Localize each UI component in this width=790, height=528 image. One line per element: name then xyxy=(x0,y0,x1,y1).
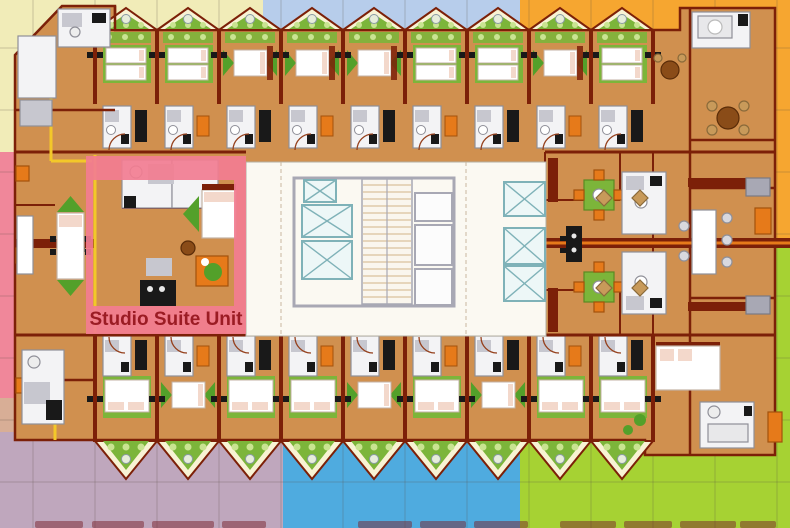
burner xyxy=(147,286,153,292)
cabinet-bar xyxy=(548,158,558,202)
pillow xyxy=(449,50,454,61)
planter xyxy=(556,15,565,24)
hinge-dot xyxy=(560,236,567,241)
pillow xyxy=(449,67,454,78)
hinge-dot xyxy=(149,52,155,58)
kitchen-counter xyxy=(383,340,395,370)
headboard xyxy=(202,184,236,190)
cabinet-grid xyxy=(768,412,782,442)
hinge-dot xyxy=(345,396,351,402)
planter xyxy=(122,15,131,24)
chair xyxy=(574,190,584,200)
chair-tan xyxy=(739,125,749,135)
plant-dot xyxy=(262,34,268,40)
hinge-dot xyxy=(397,396,403,402)
fixture xyxy=(245,134,253,144)
chair-tan xyxy=(707,101,717,111)
hinge-dot xyxy=(469,52,475,58)
kitchen-counter xyxy=(631,340,643,370)
hinge-dot xyxy=(50,249,56,255)
pillow xyxy=(678,349,692,361)
hinge-dot xyxy=(459,52,465,58)
pillow xyxy=(108,402,124,410)
hinge-dot xyxy=(335,52,341,58)
kitchen-counter xyxy=(259,110,271,142)
chair xyxy=(574,282,584,292)
chair-round xyxy=(722,257,732,267)
bathtub xyxy=(708,424,748,442)
chair-round xyxy=(679,251,689,261)
plant-dot xyxy=(324,34,330,40)
kitchen-counter xyxy=(140,280,176,306)
plant-dot xyxy=(572,444,579,451)
sink xyxy=(169,126,178,135)
fixture xyxy=(738,14,748,26)
room-left xyxy=(18,36,56,98)
pillow xyxy=(604,402,620,410)
hinge-dot xyxy=(655,396,661,402)
plant-dot xyxy=(510,34,516,40)
hinge-dot xyxy=(521,396,527,402)
kitchen-counter xyxy=(259,340,271,370)
highlight-band xyxy=(234,180,246,306)
sink xyxy=(28,356,40,368)
plant-dot xyxy=(619,444,626,451)
plant-dot xyxy=(448,34,454,40)
chair-tan xyxy=(654,54,662,62)
divider-wall xyxy=(527,30,531,104)
divider-wall xyxy=(341,30,345,104)
pillow xyxy=(198,384,203,406)
kitchen-counter xyxy=(507,340,519,370)
pillow xyxy=(260,52,265,74)
cutoff-text xyxy=(560,521,616,528)
divider-wall xyxy=(403,30,407,104)
fixture xyxy=(555,362,563,372)
tile xyxy=(229,110,243,122)
planter xyxy=(370,455,379,464)
hinge-dot xyxy=(221,396,227,402)
side-table xyxy=(181,241,195,255)
kitchen-counter xyxy=(507,110,519,142)
planter xyxy=(494,15,503,24)
pillow xyxy=(570,52,575,74)
cabinet xyxy=(445,346,457,366)
hinge-dot xyxy=(149,396,155,402)
dish xyxy=(201,258,209,266)
fixture xyxy=(183,134,191,144)
plant-dot xyxy=(184,34,190,40)
plant-dot xyxy=(246,34,252,40)
cutoff-text xyxy=(474,521,528,528)
headboard xyxy=(577,46,583,80)
fixture xyxy=(744,406,752,416)
divider-wall xyxy=(465,30,469,104)
planter xyxy=(308,455,317,464)
hinge-dot xyxy=(87,396,93,402)
cutoff-text xyxy=(420,521,466,528)
plant-dot xyxy=(370,34,376,40)
hinge-dot xyxy=(159,52,165,58)
hinge-dot xyxy=(583,52,589,58)
pillow xyxy=(201,50,206,61)
fixture xyxy=(307,362,315,372)
studio-suite-label: Studio Suite Unit xyxy=(86,306,246,334)
kitchen-counter xyxy=(566,226,582,262)
hinge-dot xyxy=(560,248,567,253)
hinge-dot xyxy=(407,396,413,402)
plant-dot xyxy=(232,444,239,451)
cabinet xyxy=(197,346,209,366)
plant xyxy=(623,425,633,435)
hinge-dot xyxy=(583,396,589,402)
plant-dot xyxy=(262,444,269,451)
plant-dot xyxy=(433,444,440,451)
hinge-dot xyxy=(283,396,289,402)
fixture xyxy=(650,176,662,186)
cabinet xyxy=(197,116,209,136)
plant-dot xyxy=(122,34,128,40)
plant-dot xyxy=(308,34,314,40)
plant-dot xyxy=(572,34,578,40)
plant-dot xyxy=(138,444,145,451)
plant-dot xyxy=(262,22,268,28)
plant-dot xyxy=(432,34,438,40)
plant-dot xyxy=(634,34,640,40)
divider-wall xyxy=(589,30,593,104)
table-round xyxy=(717,107,739,129)
tile xyxy=(105,110,119,122)
pillow xyxy=(562,402,578,410)
sink xyxy=(355,126,364,135)
plant-dot xyxy=(494,34,500,40)
divider-wall xyxy=(651,30,655,104)
hinge-dot xyxy=(645,396,651,402)
cabinet xyxy=(16,166,29,181)
pillow xyxy=(128,402,144,410)
plant-dot xyxy=(324,444,331,451)
pillow xyxy=(542,402,558,410)
chair xyxy=(594,170,604,180)
shaft xyxy=(415,193,452,221)
planter xyxy=(494,455,503,464)
planter xyxy=(122,455,131,464)
fixture xyxy=(369,134,377,144)
shaft xyxy=(415,225,452,265)
hinge-dot xyxy=(521,52,527,58)
tile xyxy=(477,110,491,122)
planter xyxy=(432,15,441,24)
plant-dot xyxy=(542,22,548,28)
tile xyxy=(146,258,172,276)
divider-wall xyxy=(465,336,469,442)
planter xyxy=(246,15,255,24)
kitchen-counter xyxy=(135,340,147,370)
hinge-dot xyxy=(531,396,537,402)
chair-round xyxy=(722,235,732,245)
plant-dot xyxy=(557,444,564,451)
cutoff-text xyxy=(680,521,736,528)
floorplan-drawing xyxy=(0,0,790,528)
divider-wall xyxy=(93,336,97,442)
pillow xyxy=(139,67,144,78)
plant-dot xyxy=(200,34,206,40)
plant-dot xyxy=(480,444,487,451)
chair xyxy=(594,262,604,272)
pillow xyxy=(314,402,330,410)
planter xyxy=(370,15,379,24)
plant-dot xyxy=(354,34,360,40)
cutoff-text xyxy=(92,521,144,528)
chair-round xyxy=(679,221,689,231)
divider-wall xyxy=(341,336,345,442)
pillow xyxy=(201,67,206,78)
plant-dot xyxy=(294,444,301,451)
tile xyxy=(539,110,553,122)
chair-tan xyxy=(707,125,717,135)
plant-dot xyxy=(480,22,486,28)
hinge-dot xyxy=(531,52,537,58)
plant-dot xyxy=(510,22,516,28)
sink xyxy=(479,126,488,135)
shaft xyxy=(415,269,452,305)
planter xyxy=(618,455,627,464)
planter xyxy=(184,455,193,464)
tile xyxy=(626,176,644,190)
cabinet-bar xyxy=(548,288,558,332)
chair-round xyxy=(722,213,732,223)
hinge-dot xyxy=(459,396,465,402)
sink xyxy=(603,126,612,135)
cutoff-text xyxy=(624,521,672,528)
fixture xyxy=(555,134,563,144)
highlight-band xyxy=(86,156,246,180)
cabinet xyxy=(569,116,581,136)
sink xyxy=(708,406,720,418)
burner xyxy=(572,248,577,253)
pillow xyxy=(508,384,513,406)
pillow xyxy=(660,349,674,361)
table-round xyxy=(661,61,679,79)
plant-dot xyxy=(556,34,562,40)
divider-wall xyxy=(589,336,593,442)
hinge-dot xyxy=(159,396,165,402)
plant-dot xyxy=(418,444,425,451)
pillow xyxy=(511,50,516,61)
hinge-dot xyxy=(593,52,599,58)
hinge-dot xyxy=(345,52,351,58)
divider-wall xyxy=(279,30,283,104)
hinge-dot xyxy=(645,52,651,58)
pillow xyxy=(322,52,327,74)
hinge-dot xyxy=(397,52,403,58)
pillow xyxy=(204,192,234,202)
hinge-dot xyxy=(273,396,279,402)
plant-dot xyxy=(247,444,254,451)
plant-dot xyxy=(138,34,144,40)
plant-dot xyxy=(448,444,455,451)
divider-wall xyxy=(403,336,407,442)
sink xyxy=(107,126,116,135)
sink xyxy=(293,126,302,135)
hinge-dot xyxy=(335,396,341,402)
plant-dot xyxy=(478,34,484,40)
plant-dot xyxy=(200,22,206,28)
pillow xyxy=(511,67,516,78)
sofa xyxy=(755,208,771,234)
plant-dot xyxy=(324,22,330,28)
fixture xyxy=(124,196,136,208)
hinge-dot xyxy=(211,52,217,58)
chair xyxy=(594,302,604,312)
fixture xyxy=(617,362,625,372)
pillow xyxy=(635,50,640,61)
plant-dot xyxy=(232,22,238,28)
plant-dot xyxy=(170,444,177,451)
plant-dot xyxy=(123,444,130,451)
pillow xyxy=(294,402,310,410)
cutoff-text xyxy=(358,521,412,528)
pillow xyxy=(418,402,434,410)
plant-dot xyxy=(386,22,392,28)
chair-tan xyxy=(678,54,686,62)
fixture xyxy=(92,13,106,23)
hinge-dot xyxy=(469,396,475,402)
fixture xyxy=(245,362,253,372)
sink xyxy=(417,126,426,135)
cabinet xyxy=(445,116,457,136)
divider-wall xyxy=(527,336,531,442)
plant-dot xyxy=(602,34,608,40)
long-table xyxy=(692,210,716,274)
cabinet xyxy=(569,346,581,366)
fixture xyxy=(493,362,501,372)
planter xyxy=(556,455,565,464)
tile xyxy=(353,110,367,122)
hinge-dot xyxy=(50,236,56,242)
plant-dot xyxy=(604,444,611,451)
plant-dot xyxy=(542,444,549,451)
tile xyxy=(626,296,644,310)
hinge-dot xyxy=(407,52,413,58)
chair xyxy=(594,210,604,220)
plant-dot xyxy=(230,34,236,40)
plant-dot xyxy=(356,22,362,28)
plant xyxy=(634,414,646,426)
hinge-dot xyxy=(273,52,279,58)
tile xyxy=(291,110,305,122)
fixture xyxy=(121,134,129,144)
pillow xyxy=(635,67,640,78)
tile xyxy=(62,13,82,27)
fixture xyxy=(121,362,129,372)
cutoff-text xyxy=(152,521,214,528)
sink xyxy=(231,126,240,135)
plant-dot xyxy=(356,444,363,451)
plant-dot xyxy=(416,34,422,40)
tile xyxy=(20,100,52,126)
pillow xyxy=(384,52,389,74)
cabinet xyxy=(321,116,333,136)
hinge-dot xyxy=(97,52,103,58)
divider-wall xyxy=(155,336,159,442)
fixture xyxy=(46,400,62,420)
cutoff-text xyxy=(35,521,83,528)
fixture xyxy=(617,134,625,144)
fixture xyxy=(307,134,315,144)
pillow xyxy=(384,384,389,406)
plant-dot xyxy=(634,22,640,28)
plant xyxy=(204,263,222,281)
plant-dot xyxy=(168,34,174,40)
kitchen-counter xyxy=(631,110,643,142)
fixture xyxy=(369,362,377,372)
divider-wall xyxy=(155,30,159,104)
planter xyxy=(308,15,317,24)
plant-dot xyxy=(540,34,546,40)
pillow xyxy=(232,402,248,410)
highlight-band xyxy=(86,180,93,306)
fixture xyxy=(493,134,501,144)
plant-dot xyxy=(604,22,610,28)
plant-dot xyxy=(448,22,454,28)
pillow xyxy=(59,215,82,227)
pillow xyxy=(252,402,268,410)
tile xyxy=(601,110,615,122)
divider-wall xyxy=(279,336,283,442)
fixture xyxy=(183,362,191,372)
planter xyxy=(246,455,255,464)
plant-dot xyxy=(510,444,517,451)
cutoff-text xyxy=(222,521,266,528)
divider-wall xyxy=(651,336,655,442)
plant-dot xyxy=(185,444,192,451)
plant-dot xyxy=(108,444,115,451)
pillow xyxy=(438,402,454,410)
planter xyxy=(184,15,193,24)
plant-dot xyxy=(294,22,300,28)
hinge-dot xyxy=(593,396,599,402)
tile xyxy=(415,110,429,122)
plant-dot xyxy=(618,34,624,40)
plant-dot xyxy=(386,444,393,451)
closet xyxy=(746,178,770,196)
service-core xyxy=(246,162,546,336)
hinge-dot xyxy=(87,52,93,58)
kitchen-counter xyxy=(383,110,395,142)
plant-dot xyxy=(572,22,578,28)
burner xyxy=(572,234,577,239)
plant-dot xyxy=(634,444,641,451)
headboard xyxy=(267,46,273,80)
wardrobe xyxy=(17,216,33,274)
closet xyxy=(746,296,770,314)
sink xyxy=(70,27,80,37)
chair-tan xyxy=(739,101,749,111)
hinge-dot xyxy=(283,52,289,58)
planter xyxy=(432,455,441,464)
plant-dot xyxy=(200,444,207,451)
fixture xyxy=(650,298,662,308)
pillow xyxy=(139,50,144,61)
divider-wall xyxy=(217,30,221,104)
hinge-dot xyxy=(211,396,217,402)
plant-dot xyxy=(170,22,176,28)
planter xyxy=(618,15,627,24)
plant-dot xyxy=(371,444,378,451)
kitchen-counter xyxy=(135,110,147,142)
hinge-dot xyxy=(221,52,227,58)
